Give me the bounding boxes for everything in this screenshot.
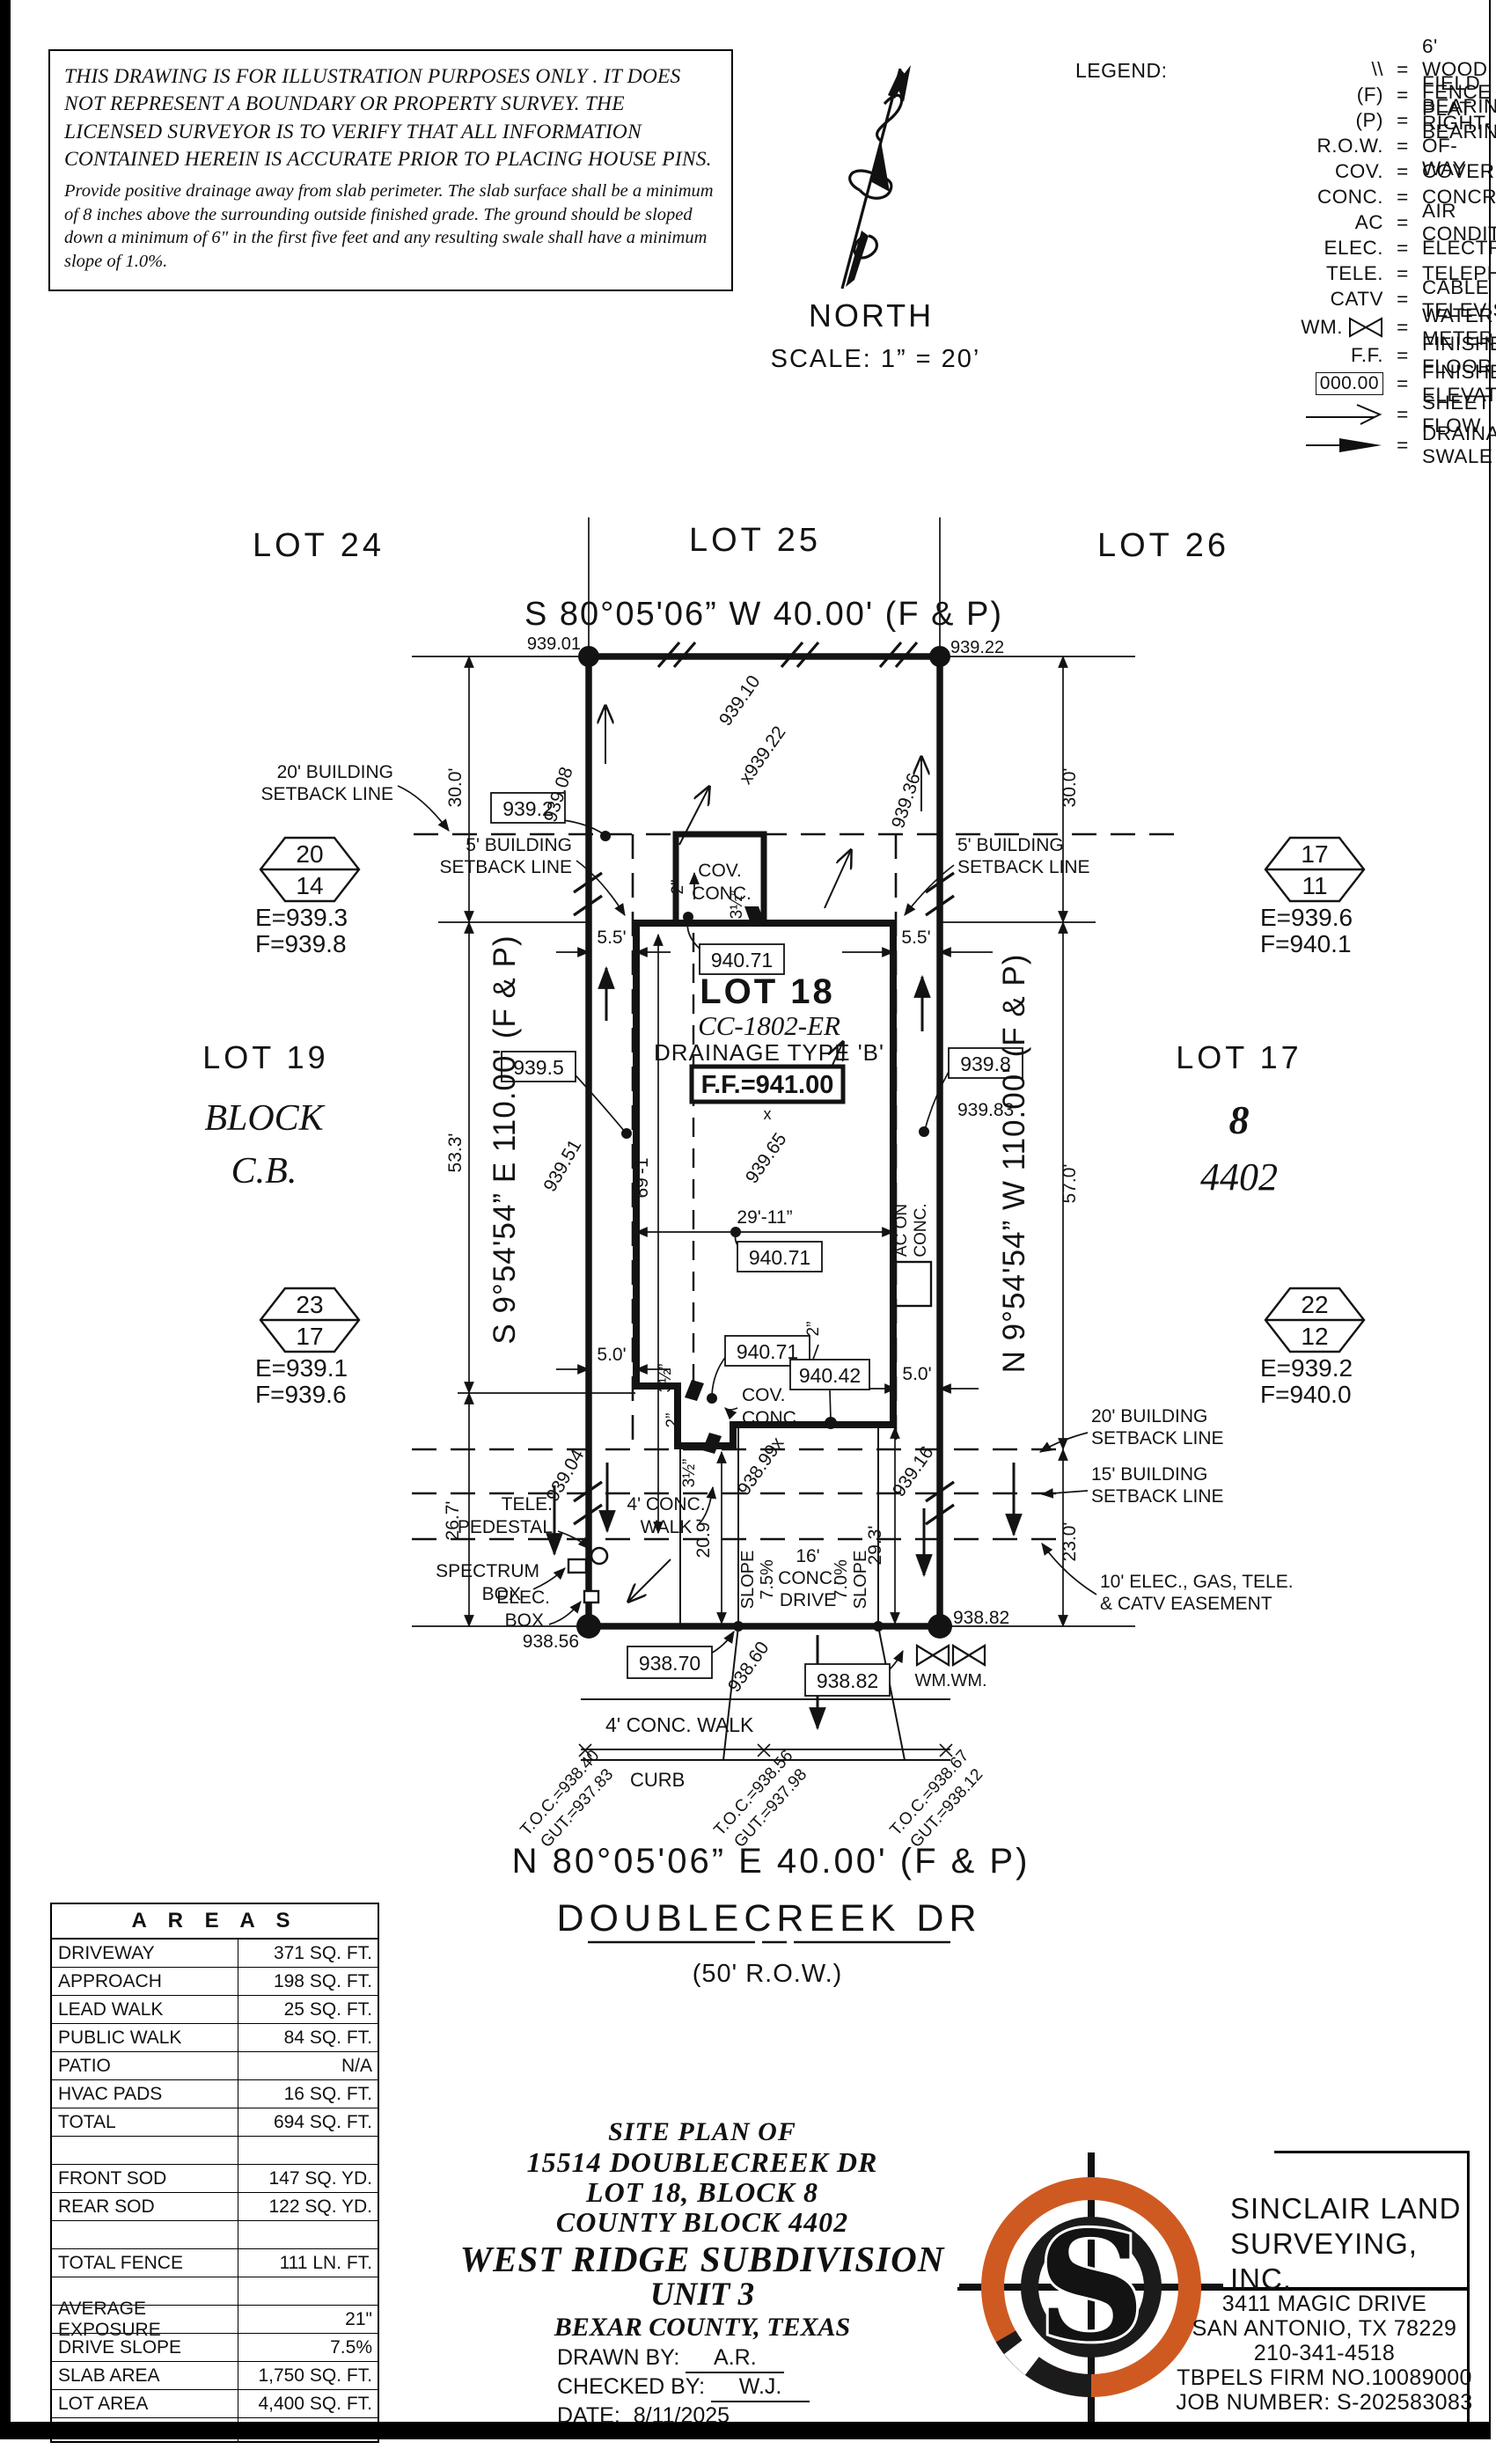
areas-table-title: A R E A S — [52, 1904, 378, 1940]
row-label: (50' R.O.W.) — [693, 1960, 843, 1988]
svg-text:939.10: 939.10 — [715, 671, 765, 730]
lot17-label: LOT 17 — [1176, 1039, 1302, 1075]
elev-box-940-42: 940.42 — [799, 1364, 861, 1387]
svg-text:29.3': 29.3' — [865, 1526, 885, 1566]
title-subdivision: WEST RIDGE SUBDIVISION — [412, 2240, 993, 2277]
svg-text:17: 17 — [1301, 840, 1328, 868]
svg-text:938.99x: 938.99x — [734, 1434, 788, 1500]
title-county: BEXAR COUNTY, TEXAS — [412, 2313, 993, 2343]
logo-letter: S — [1038, 2199, 1146, 2375]
svg-text:22: 22 — [1301, 1291, 1328, 1318]
svg-text:5' BUILDING: 5' BUILDING — [466, 835, 572, 855]
title-address: 15514 DOUBLECREEK DR — [412, 2147, 993, 2177]
block8-label: 8 — [1229, 1097, 1250, 1142]
firm-job-number: JOB NUMBER: S-202583083 — [1170, 2390, 1478, 2415]
svg-text:4' CONC. WALK: 4' CONC. WALK — [605, 1713, 754, 1736]
water-meter-icon-2 — [953, 1646, 985, 1665]
svg-text:WALK: WALK — [641, 1517, 693, 1537]
svg-text:E=939.1: E=939.1 — [255, 1354, 348, 1382]
svg-text:SETBACK LINE: SETBACK LINE — [1091, 1486, 1224, 1507]
svg-text:939.16: 939.16 — [889, 1442, 938, 1500]
svg-text:DRIVE: DRIVE — [780, 1590, 836, 1610]
svg-text:20.9': 20.9' — [693, 1519, 714, 1558]
svg-text:939.83: 939.83 — [957, 1100, 1014, 1120]
drawn-by-field: DRAWN BY: A.R. — [557, 2344, 847, 2373]
svg-text:939.65: 939.65 — [742, 1129, 791, 1187]
svg-text:30.0': 30.0' — [1060, 768, 1080, 808]
ac-pad — [894, 1262, 931, 1306]
site-plan-sheet: { "disclaimer": { "big_lines": "THIS DRA… — [0, 0, 1496, 2464]
plan-number: CC-1802-ER — [698, 1010, 840, 1041]
svg-text:23.0': 23.0' — [1060, 1522, 1080, 1562]
svg-text:29'-11”: 29'-11” — [737, 1207, 792, 1228]
svg-text:CURB: CURB — [630, 1769, 685, 1791]
lot18-label: LOT 18 — [700, 972, 835, 1011]
toc-clusters: T.O.C.=938.40GUT.=937.83 T.O.C.=938.56GU… — [517, 1747, 990, 1855]
svg-text:E=939.2: E=939.2 — [1260, 1354, 1353, 1382]
svg-text:939.22: 939.22 — [950, 638, 1004, 657]
elec-box-icon — [584, 1591, 598, 1602]
table-row: DRIVE SLOPE7.5% — [52, 2334, 378, 2362]
svg-text:SETBACK LINE: SETBACK LINE — [439, 857, 572, 877]
svg-text:4' CONC.: 4' CONC. — [627, 1494, 705, 1514]
lot19-label: LOT 19 — [202, 1039, 328, 1075]
svg-text:CONC.: CONC. — [742, 1408, 802, 1428]
title-lot-block: LOT 18, BLOCK 8 — [412, 2177, 993, 2207]
svg-text:SLOPE: SLOPE — [738, 1551, 758, 1610]
title-county-block: COUNTY BLOCK 4402 — [412, 2207, 993, 2237]
table-row: AVERAGE EXPOSURE21" — [52, 2306, 378, 2334]
table-row: APPROACH198 SQ. FT. — [52, 1968, 378, 1996]
spectrum-box-icon — [568, 1559, 586, 1573]
firm-frame-top — [1274, 2151, 1470, 2153]
checked-by-field: CHECKED BY: W.J. — [557, 2373, 847, 2402]
title-unit: UNIT 3 — [412, 2277, 993, 2313]
svg-text:F=940.0: F=940.0 — [1260, 1381, 1352, 1408]
svg-text:17: 17 — [296, 1323, 323, 1350]
svg-text:57.0': 57.0' — [1060, 1164, 1080, 1204]
svg-text:ELEC.: ELEC. — [496, 1588, 550, 1608]
elev-box-938-82: 938.82 — [817, 1669, 878, 1692]
svg-text:23: 23 — [296, 1291, 323, 1318]
svg-text:3½”: 3½” — [728, 891, 746, 920]
bearing-front: N 80°05'06” E 40.00' (F & P) — [512, 1842, 1030, 1881]
table-row: SLAB AREA1,750 SQ. FT. — [52, 2362, 378, 2390]
firm-city: SAN ANTONIO, TX 78229 — [1170, 2316, 1478, 2341]
lot25-label: LOT 25 — [689, 522, 821, 559]
svg-text:SETBACK LINE: SETBACK LINE — [260, 784, 393, 804]
bearing-left: S 9°54'54” E 110.00' (F & P) — [488, 935, 522, 1344]
drainage-type: DRAINAGE TYPE 'B' — [654, 1039, 884, 1066]
svg-text:53.3': 53.3' — [445, 1133, 466, 1173]
svg-text:5.0': 5.0' — [597, 1345, 626, 1365]
svg-text:& CATV EASEMENT: & CATV EASEMENT — [1100, 1594, 1272, 1614]
bearing-right: N 9°54'54” W 110.00' (F & P) — [997, 954, 1031, 1374]
svg-text:E=939.6: E=939.6 — [1260, 904, 1353, 931]
table-row: TOTAL FENCE111 LN. FT. — [52, 2249, 378, 2277]
firm-phone: 210-341-4518 — [1170, 2341, 1478, 2365]
tele-pedestal-icon — [591, 1548, 607, 1564]
svg-text:5.0': 5.0' — [902, 1364, 931, 1384]
block-cb-label: C.B. — [231, 1151, 297, 1192]
svg-text:PEDESTAL: PEDESTAL — [458, 1517, 553, 1537]
svg-text:69'-1”: 69'-1” — [632, 1151, 652, 1198]
svg-text:CONC.: CONC. — [778, 1568, 838, 1588]
elev-box-940-71b: 940.71 — [749, 1246, 810, 1269]
svg-text:20' BUILDING: 20' BUILDING — [1091, 1406, 1207, 1426]
svg-text:TELE.: TELE. — [502, 1494, 553, 1514]
svg-text:x939.22: x939.22 — [736, 722, 790, 788]
table-row: TOTAL694 SQ. FT. — [52, 2108, 378, 2137]
svg-text:BOX: BOX — [505, 1610, 544, 1631]
svg-text:SETBACK LINE: SETBACK LINE — [957, 857, 1090, 877]
svg-text:WM.: WM. — [914, 1671, 950, 1690]
firm-address: 3411 MAGIC DRIVE SAN ANTONIO, TX 78229 2… — [1170, 2292, 1478, 2415]
svg-text:5' BUILDING: 5' BUILDING — [957, 835, 1064, 855]
svg-text:15' BUILDING: 15' BUILDING — [1091, 1464, 1207, 1485]
svg-text:5.5': 5.5' — [901, 928, 930, 948]
svg-text:14: 14 — [296, 872, 323, 899]
elev-box-938-70: 938.70 — [639, 1652, 700, 1675]
table-row — [52, 2137, 378, 2165]
table-row: PATION/A — [52, 2052, 378, 2080]
street-name: DOUBLECREEK DR — [556, 1897, 981, 1940]
svg-text:3½”: 3½” — [680, 1459, 699, 1488]
svg-text:20: 20 — [296, 840, 323, 868]
elev-box-940-71c: 940.71 — [737, 1340, 798, 1363]
table-row: PUBLIC WALK84 SQ. FT. — [52, 2024, 378, 2052]
firm-number: TBPELS FIRM NO.10089000 — [1170, 2365, 1478, 2390]
table-row: HVAC PADS16 SQ. FT. — [52, 2080, 378, 2108]
cb4402-label: 4402 — [1200, 1155, 1278, 1199]
svg-text:30.0': 30.0' — [445, 768, 466, 808]
svg-text:COV.: COV. — [698, 861, 741, 881]
svg-text:CONC.: CONC. — [912, 1203, 930, 1257]
svg-text:SPECTRUM: SPECTRUM — [436, 1561, 539, 1581]
date-field: DATE: 8/11/2025 — [557, 2402, 847, 2431]
svg-text:2”: 2” — [664, 1413, 682, 1428]
title-line-1: SITE PLAN OF — [412, 2117, 993, 2147]
svg-text:7.5%: 7.5% — [758, 1559, 777, 1600]
title-block: SITE PLAN OF 15514 DOUBLECREEK DR LOT 18… — [412, 2117, 993, 2431]
lot24-label: LOT 24 — [253, 527, 385, 564]
svg-text:938.82: 938.82 — [953, 1608, 1009, 1628]
firm-name: SINCLAIR LAND SURVEYING, INC. — [1230, 2191, 1477, 2297]
svg-text:11: 11 — [1302, 872, 1327, 899]
svg-text:12: 12 — [1301, 1323, 1328, 1350]
block-label: BLOCK — [204, 1098, 325, 1139]
svg-text:16': 16' — [796, 1546, 819, 1566]
table-row: LOT AREA4,400 SQ. FT. — [52, 2390, 378, 2418]
table-row: FRONT SOD147 SQ. YD. — [52, 2165, 378, 2193]
svg-text:E=939.3: E=939.3 — [255, 904, 348, 931]
table-row: REAR SOD122 SQ. YD. — [52, 2193, 378, 2221]
svg-text:938.56: 938.56 — [523, 1632, 579, 1652]
table-row: DRIVEWAY371 SQ. FT. — [52, 1940, 378, 1968]
areas-table: A R E A S DRIVEWAY371 SQ. FT. APPROACH19… — [50, 1903, 379, 2443]
svg-text:5.5': 5.5' — [597, 928, 626, 948]
svg-text:26.7': 26.7' — [443, 1501, 463, 1541]
svg-text:WM.: WM. — [950, 1671, 986, 1690]
svg-text:F=939.8: F=939.8 — [255, 930, 347, 957]
street-labels: N 80°05'06” E 40.00' (F & P) DOUBLECREEK… — [512, 1842, 1030, 1988]
svg-text:AC ON: AC ON — [892, 1204, 911, 1257]
svg-text:20' BUILDING: 20' BUILDING — [277, 762, 393, 782]
svg-text:10' ELEC., GAS, TELE.: 10' ELEC., GAS, TELE. — [1100, 1572, 1294, 1592]
lot26-label: LOT 26 — [1097, 527, 1229, 564]
svg-text:939.01: 939.01 — [527, 634, 581, 654]
bearing-rear: S 80°05'06” W 40.00' (F & P) — [524, 596, 1003, 633]
svg-text:3½”: 3½” — [656, 1364, 675, 1393]
water-meter-icon-1 — [917, 1646, 949, 1665]
plan-annotations: 939.01 939.22 20' BUILDING SETBACK LINE … — [260, 634, 1293, 1791]
svg-text:F=940.1: F=940.1 — [1260, 930, 1352, 957]
firm-street: 3411 MAGIC DRIVE — [1170, 2292, 1478, 2316]
svg-text:938.60: 938.60 — [724, 1638, 774, 1696]
svg-text:COV.: COV. — [742, 1385, 785, 1405]
svg-text:7.0%: 7.0% — [832, 1559, 851, 1600]
svg-text:SETBACK LINE: SETBACK LINE — [1091, 1428, 1224, 1448]
svg-text:939.51: 939.51 — [539, 1136, 585, 1195]
svg-text:F=939.6: F=939.6 — [255, 1381, 347, 1408]
table-row: LEAD WALK25 SQ. FT. — [52, 1996, 378, 2024]
svg-text:2”: 2” — [669, 880, 687, 895]
svg-text:2”: 2” — [804, 1322, 823, 1337]
table-row — [52, 2221, 378, 2249]
table-row — [52, 2418, 378, 2441]
svg-text:x: x — [764, 1105, 772, 1123]
elev-box-940-71a: 940.71 — [711, 949, 773, 972]
svg-text:939.36: 939.36 — [888, 771, 925, 831]
finished-floor-elevation: F.F.=941.00 — [701, 1071, 834, 1099]
